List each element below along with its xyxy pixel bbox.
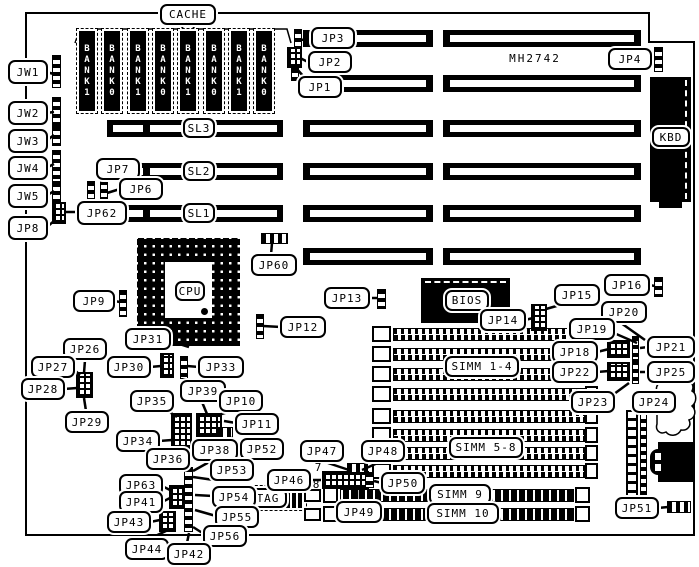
label-jp1: JP1: [298, 76, 342, 98]
label-jp62: JP62: [77, 201, 127, 225]
label-kbd: KBD: [652, 127, 690, 147]
label-jw5: JW5: [8, 184, 48, 208]
label-jp24: JP24: [632, 391, 676, 413]
label-jp13: JP13: [324, 287, 370, 309]
label-jp53: JP53: [210, 459, 254, 481]
label-jp12: JP12: [280, 316, 326, 338]
label-jp35: JP35: [130, 390, 174, 412]
label-simm9: SIMM 9: [429, 484, 491, 505]
label-jp9: JP9: [73, 290, 115, 312]
label-jp33: JP33: [198, 356, 244, 378]
label-jp43: JP43: [107, 511, 151, 533]
label-jp47: JP47: [300, 440, 344, 462]
label-jp10: JP10: [219, 390, 263, 412]
label-jp49: JP49: [336, 501, 382, 523]
label-jp19: JP19: [569, 318, 615, 340]
label-jp28: JP28: [21, 378, 65, 400]
label-jp4: JP4: [608, 48, 652, 70]
label-jp18: JP18: [552, 341, 598, 363]
label-jp6: JP6: [119, 178, 163, 200]
label-jp11: JP11: [235, 413, 279, 435]
label-jw4: JW4: [8, 156, 48, 180]
label-jp7: JP7: [96, 158, 140, 180]
motherboard-jumper-diagram: B A N K 1B A N K 0B A N K 1B A N K 0B A …: [0, 0, 699, 567]
label-jw3: JW3: [8, 129, 48, 153]
label-jp52: JP52: [240, 438, 284, 460]
label-jp14: JP14: [480, 309, 526, 331]
label-jp48: JP48: [361, 440, 405, 462]
label-jp60: JP60: [251, 254, 297, 276]
label-jp29: JP29: [65, 411, 109, 433]
label-jw1: JW1: [8, 60, 48, 84]
label-jp44: JP44: [125, 538, 169, 560]
label-cache: CACHE: [160, 4, 216, 25]
label-jp50: JP50: [381, 472, 425, 494]
label-jp41: JP41: [119, 491, 163, 513]
label-jw2: JW2: [8, 101, 48, 125]
label-jp2: JP2: [308, 51, 352, 73]
label-sl2: SL2: [183, 161, 215, 181]
label-sl1: SL1: [183, 203, 215, 223]
label-sl3: SL3: [183, 118, 215, 138]
label-jp8: JP8: [8, 216, 48, 240]
label-jp3: JP3: [311, 27, 355, 49]
label-bios: BIOS: [445, 290, 489, 311]
label-jp21: JP21: [647, 336, 695, 358]
label-jp54: JP54: [212, 486, 256, 508]
label-jp30: JP30: [107, 356, 151, 378]
label-cpu: CPU: [175, 281, 205, 301]
label-jp25: JP25: [647, 361, 695, 383]
labels-layer: CACHEJW1JW2JW3JW4JW5JP8JP3JP2JP1JP4SL3SL…: [0, 0, 699, 567]
label-simm10: SIMM 10: [427, 503, 499, 524]
label-jp42: JP42: [167, 543, 211, 565]
label-simm14: SIMM 1-4: [445, 356, 519, 377]
part-number-text: MH2742: [500, 50, 570, 66]
label-jp38: JP38: [192, 439, 238, 461]
label-jp46: JP46: [267, 469, 311, 491]
label-jp16: JP16: [604, 274, 650, 296]
label-jp22: JP22: [552, 361, 598, 383]
label-jp23: JP23: [571, 391, 615, 413]
label-jp31: JP31: [125, 328, 171, 350]
label-jp56: JP56: [203, 525, 247, 547]
label-pin7: 7: [314, 460, 324, 474]
label-jp36: JP36: [146, 448, 190, 470]
label-jp15: JP15: [554, 284, 600, 306]
label-pin8: 8: [312, 477, 322, 491]
label-jp27: JP27: [31, 356, 75, 378]
label-simm58: SIMM 5-8: [449, 437, 523, 458]
label-jp51: JP51: [615, 497, 659, 519]
